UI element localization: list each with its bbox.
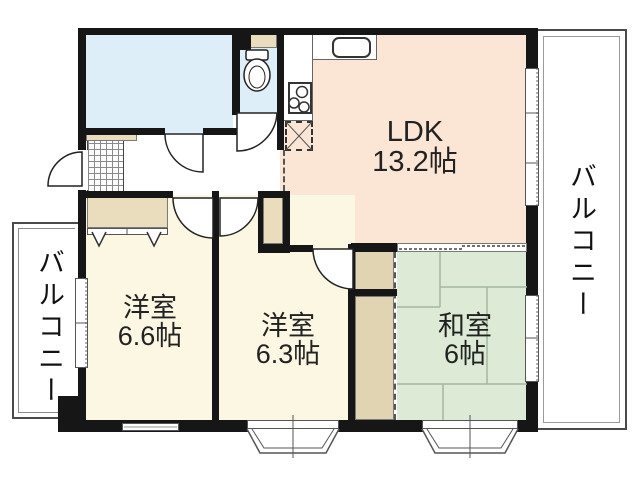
genkan-tile-grid xyxy=(87,140,124,193)
open-boundary-hall-ldk xyxy=(283,150,285,191)
window-ldk-balcony xyxy=(525,68,539,206)
ldk-name: LDK xyxy=(340,118,490,148)
balcony-left-label: バルコニー xyxy=(30,248,69,418)
western-room-2-closet xyxy=(263,197,283,244)
bathroom-floor xyxy=(84,33,233,133)
western-room-2-label: 洋室 6.3帖 xyxy=(223,313,353,368)
wall-hall-bottom-left xyxy=(84,191,173,198)
wall-ldk-bottom-1 xyxy=(287,245,313,252)
wall-bath-bottom-left xyxy=(84,128,165,135)
wall-bath-bottom-right xyxy=(203,128,240,135)
balcony-right-label: バルコニー xyxy=(562,162,601,342)
wall-top xyxy=(78,28,538,35)
ldk-area: 13.2帖 xyxy=(340,148,490,178)
window-west1-bottom xyxy=(122,423,179,431)
refrigerator-icon xyxy=(285,121,313,151)
bay-window-1-opening xyxy=(247,420,339,429)
wall-kitchen xyxy=(277,33,284,150)
wall-left xyxy=(78,28,86,432)
western-room-1-label: 洋室 6.6帖 xyxy=(85,295,215,350)
kitchen-sink-icon xyxy=(332,37,371,58)
wall-closet-post xyxy=(258,197,263,250)
toilet-floor xyxy=(236,48,279,114)
japanese-room-area: 6帖 xyxy=(400,341,530,369)
wall-toilet-corner xyxy=(236,33,251,50)
entrance-opening xyxy=(75,150,88,190)
floor-plan: LDK 13.2帖 洋室 6.6帖 洋室 6.3帖 和室 6帖 バルコニー バル… xyxy=(0,0,640,480)
western-room-2-area: 6.3帖 xyxy=(223,341,353,369)
wall-tatami-closet-stub xyxy=(350,289,397,296)
western-room-1-closet xyxy=(87,197,168,228)
stove-icon xyxy=(288,82,312,114)
wall-closet-bottom xyxy=(258,244,290,253)
ldk-label: LDK 13.2帖 xyxy=(340,118,490,177)
japanese-room-closet-upper xyxy=(355,250,394,290)
toilet-shelf xyxy=(249,34,277,48)
japanese-room-name: 和室 xyxy=(400,313,530,341)
western-room-2-name: 洋室 xyxy=(223,313,353,341)
bay-window-2-opening xyxy=(422,420,518,429)
bathroom-door-swing xyxy=(165,134,203,172)
toilet-door-swing xyxy=(237,113,277,151)
japanese-room-closet-lower xyxy=(355,296,394,420)
western-room-1-area: 6.6帖 xyxy=(85,323,215,351)
sliding-door-ldk-japanese xyxy=(397,243,527,252)
japanese-room-label: 和室 6帖 xyxy=(400,313,530,368)
wall-ldk-bottom-2 xyxy=(351,243,397,252)
western-room-1-name: 洋室 xyxy=(85,295,215,323)
fusuma-sliding-door xyxy=(394,252,396,420)
western-room-1-closet-front xyxy=(87,228,168,235)
